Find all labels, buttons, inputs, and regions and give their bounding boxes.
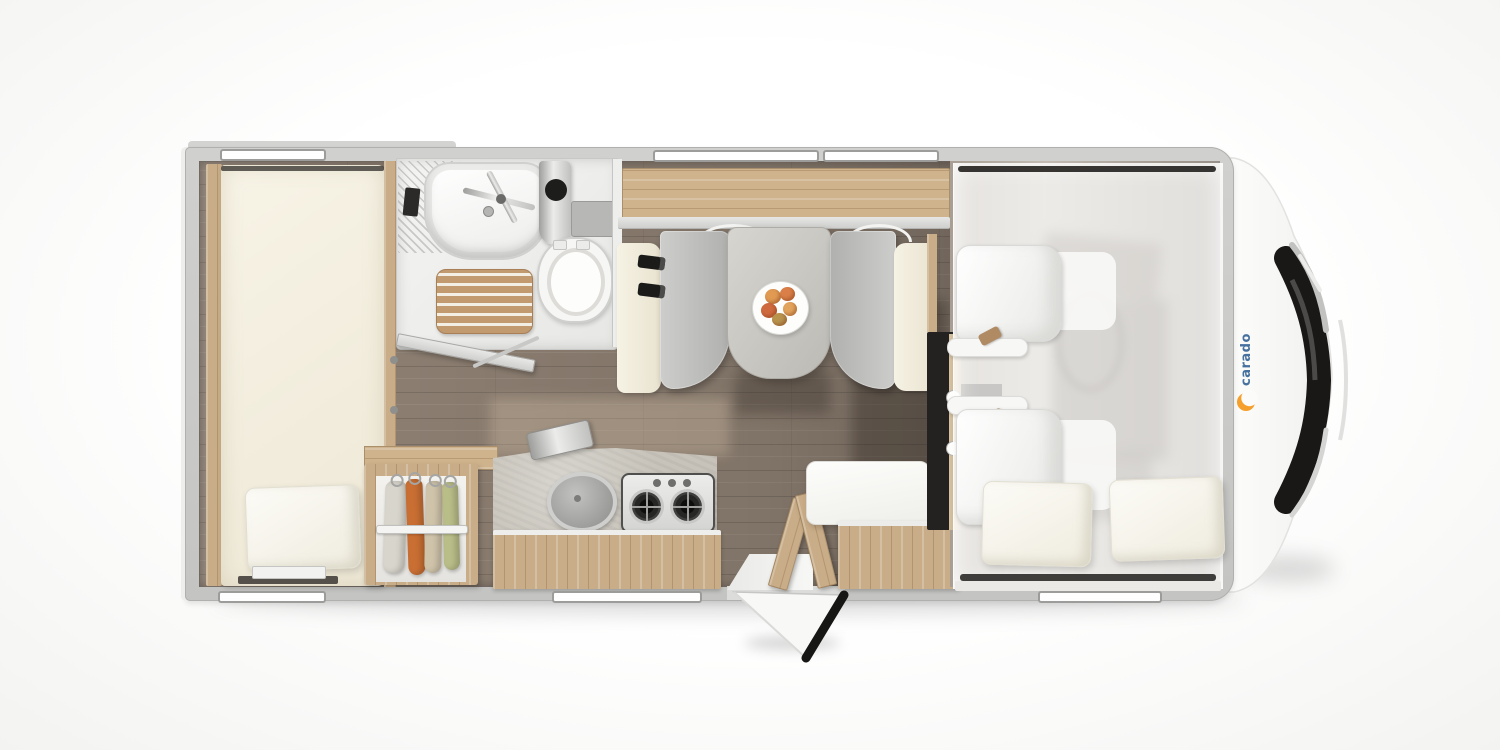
kitchen-drawer-front — [493, 530, 721, 589]
toilet-lid-hinge-right — [576, 240, 590, 250]
shower-column — [539, 161, 571, 245]
bed-foot-ledge — [955, 581, 1221, 591]
fruit-5 — [772, 313, 787, 326]
bed-head-rail — [221, 166, 384, 171]
dinette-right-wood-trim — [927, 234, 937, 332]
shower-corner-shelf — [403, 187, 421, 216]
open-entry-door — [728, 586, 852, 666]
shower-head — [545, 179, 567, 201]
brand-logo-text: carado — [1239, 333, 1254, 386]
windshield-top-edge-line — [958, 166, 1216, 172]
window-bottom-rear — [218, 591, 326, 603]
hob-burner-right — [673, 492, 702, 521]
fruit-plate — [752, 281, 809, 335]
entrance-side-bench — [806, 461, 930, 525]
dinette-right-bench — [830, 231, 896, 389]
bed-pillow — [245, 484, 362, 572]
hood-edge-line — [1340, 320, 1346, 440]
faucet-base — [496, 194, 506, 204]
window-top-dinette-right — [823, 150, 939, 162]
sink-cover-center-dot — [574, 495, 581, 502]
logo-swoosh-cutout — [1241, 390, 1257, 406]
fruit-1 — [765, 289, 781, 304]
fruit-2 — [780, 287, 795, 301]
window-top-dinette-left — [653, 150, 819, 162]
wardrobe-clothes-rail — [376, 525, 468, 534]
drop-down-bed-pillow-left — [981, 481, 1093, 568]
hob-knob-2 — [668, 479, 676, 487]
bed-foot-sill-white — [252, 566, 326, 579]
basin-drain — [483, 206, 494, 217]
drop-down-bed-pillow-right — [1109, 476, 1226, 562]
toilet-cistern — [571, 201, 616, 237]
bed-side-wood-frame — [206, 164, 222, 586]
toilet-lid-hinge-left — [553, 240, 567, 250]
hob-knob-1 — [653, 479, 661, 487]
bed-foot-dark-rail — [960, 574, 1216, 581]
partition-hinge-bottom — [390, 406, 398, 414]
motorhome-floorplan: carado — [0, 0, 1500, 750]
hob-burner-left — [632, 492, 661, 521]
cab-nose: carado — [1222, 140, 1402, 610]
hob-knob-3 — [683, 479, 691, 487]
dinette-sideboard-counter — [622, 168, 950, 220]
wooden-shower-mat — [436, 269, 533, 334]
toilet-seat-ring — [547, 248, 605, 316]
window-top-rear — [220, 149, 326, 161]
fruit-4 — [783, 302, 797, 316]
passenger-seat-backrest — [956, 245, 1062, 342]
sink-round-cover — [547, 472, 617, 532]
partition-hinge-top — [390, 356, 398, 364]
window-bottom-kitchen — [552, 591, 702, 603]
floor-light-patch — [490, 398, 730, 456]
entrance-drawer-cabinet — [838, 521, 960, 589]
window-bottom-cab — [1038, 591, 1162, 603]
